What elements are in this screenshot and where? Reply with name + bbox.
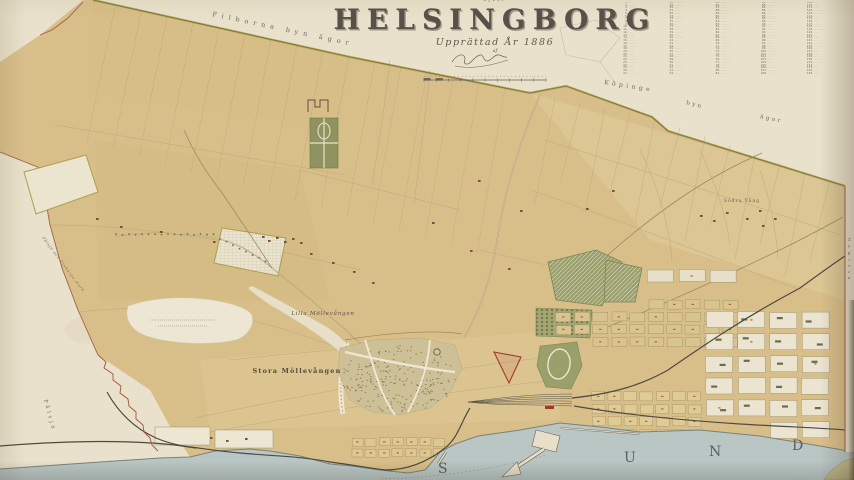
town-building: [365, 392, 366, 393]
index-column: 82.········83.·········84.····85.·····86…: [761, 2, 804, 76]
index-row: 135.·······: [807, 73, 850, 76]
town-building: [427, 389, 428, 390]
town-building: [358, 384, 359, 385]
city-block: [673, 405, 686, 414]
town-building: [361, 387, 362, 388]
town-building: [405, 409, 406, 410]
town-building: [358, 369, 359, 370]
town-building: [404, 361, 405, 362]
town-building: [403, 366, 404, 367]
town-building: [379, 351, 380, 352]
index-entry-name: ·······: [629, 73, 636, 76]
avenue-tree: [135, 234, 137, 236]
farm-building: [432, 222, 435, 224]
farm-building: [470, 250, 473, 252]
avenue-tree: [187, 233, 189, 235]
town-building: [410, 350, 411, 351]
farm-building: [713, 220, 716, 222]
city-block: [685, 338, 700, 347]
city-block: [630, 313, 645, 322]
town-building: [430, 390, 431, 391]
avenue-tree: [180, 234, 182, 236]
town-building: [387, 372, 388, 373]
avenue-tree: [141, 233, 143, 235]
town-building: [404, 405, 405, 406]
city-block: [624, 404, 637, 413]
town-building: [434, 360, 435, 361]
index-number: 81.: [714, 73, 720, 76]
label-ramlosa: Ramlösa: [847, 238, 852, 283]
avenue-tree: [115, 233, 117, 235]
town-building: [382, 382, 383, 383]
farm-building: [726, 212, 729, 214]
sund-letter-n: N: [709, 444, 721, 460]
town-building: [410, 357, 411, 358]
city-block: [802, 422, 829, 438]
farm-building: [478, 180, 481, 182]
town-building: [343, 385, 344, 386]
town-building: [394, 398, 395, 399]
town-building: [383, 384, 384, 385]
index-entry-name: ·······: [814, 73, 821, 76]
city-block: [593, 312, 608, 321]
town-building: [437, 400, 438, 401]
town-building: [389, 351, 390, 352]
city-block: [647, 270, 673, 282]
index-row: 27.·······: [622, 73, 665, 76]
town-building: [436, 378, 437, 379]
tower-keep: [434, 349, 440, 355]
avenue-tree: [128, 233, 130, 235]
city-block: [352, 439, 363, 447]
farm-building: [746, 218, 749, 220]
city-block: [365, 438, 376, 446]
town-building: [379, 353, 380, 354]
avenue-tree: [226, 241, 228, 243]
avenue-tree: [148, 233, 150, 235]
city-block: [623, 392, 636, 401]
index-column: 28.········29.·········30.····31.·····32…: [668, 2, 711, 76]
block-number-mark: [581, 329, 583, 330]
town-building: [430, 399, 431, 400]
town-building: [429, 386, 430, 387]
town-building: [396, 395, 397, 396]
town-building: [393, 383, 394, 384]
town-building: [397, 346, 398, 347]
index-row: 81.·······: [714, 73, 757, 76]
factory-building: [775, 340, 781, 342]
block-number-mark: [599, 329, 601, 330]
index-number: 27.: [622, 73, 628, 76]
factory-building: [743, 337, 749, 339]
city-block: [770, 334, 797, 350]
city-block: [672, 417, 685, 426]
factory-building: [806, 320, 812, 322]
city-block: [803, 357, 830, 373]
factory-building: [815, 407, 821, 409]
town-building: [373, 400, 374, 401]
town-building: [383, 371, 384, 372]
town-building: [401, 411, 402, 412]
town-building: [404, 373, 405, 374]
town-building: [402, 381, 403, 382]
farm-building: [262, 236, 265, 238]
factory-building: [817, 343, 823, 345]
town-building: [448, 380, 449, 381]
town-building: [445, 393, 446, 394]
farm-building: [210, 437, 213, 439]
town-building: [401, 351, 402, 352]
farm-building: [520, 210, 523, 212]
town-building: [421, 392, 422, 393]
block-number-mark: [691, 275, 693, 276]
farm-building: [268, 240, 271, 242]
city-block: [802, 312, 829, 328]
town-building: [389, 370, 390, 371]
index-row: 54.····: [668, 73, 711, 76]
city-block: [738, 400, 765, 416]
avenue-tree: [219, 238, 221, 240]
city-block: [649, 300, 664, 309]
town-building: [423, 362, 424, 363]
block-number-mark: [383, 441, 385, 442]
town-building: [388, 390, 389, 391]
block-number-mark: [750, 341, 752, 342]
index-number: 108.: [761, 73, 767, 76]
town-building: [433, 384, 434, 385]
town-building: [357, 374, 358, 375]
town-building: [391, 404, 392, 405]
farm-building: [332, 262, 335, 264]
city-block: [673, 392, 686, 401]
farm-building: [292, 238, 295, 240]
town-building: [394, 354, 395, 355]
block-number-mark: [661, 396, 663, 397]
farm-building: [353, 271, 356, 273]
town-building: [403, 384, 404, 385]
town-building: [348, 388, 349, 389]
town-building: [361, 369, 362, 370]
city-block: [802, 378, 829, 394]
town-building: [411, 346, 412, 347]
label-lilla-mollevangen: Lilla Möllevången: [290, 310, 355, 317]
avenue-tree: [245, 251, 247, 253]
index-row: 108.····: [761, 73, 804, 76]
index-number: 135.: [807, 73, 813, 76]
town-building: [360, 398, 361, 399]
town-building: [387, 407, 388, 408]
town-building: [367, 366, 368, 367]
town-building: [434, 399, 435, 400]
town-building: [347, 386, 348, 387]
label-stora-mollevangen: Stora Möllevången: [252, 366, 341, 375]
town-building: [378, 406, 379, 407]
town-building: [387, 398, 388, 399]
factory-building: [777, 317, 783, 319]
town-building: [386, 371, 387, 372]
town-building: [404, 403, 405, 404]
town-building: [384, 362, 385, 363]
block-number-mark: [397, 452, 399, 453]
town-building: [374, 386, 375, 387]
city-block: [770, 401, 797, 417]
town-building: [438, 378, 439, 379]
town-building: [367, 372, 368, 373]
town-building: [374, 362, 375, 363]
town-building: [350, 378, 351, 379]
town-building: [385, 376, 386, 377]
town-building: [397, 351, 398, 352]
town-building: [400, 368, 401, 369]
town-building: [378, 352, 379, 353]
town-building: [358, 387, 359, 388]
map-sheet: Filborna byn ägor Köpinge byn ägor Lilla…: [0, 0, 854, 480]
town-building: [448, 381, 449, 382]
sund-letter-u: U: [624, 450, 636, 466]
town-building: [425, 384, 426, 385]
town-building: [430, 380, 431, 381]
town-building: [433, 383, 434, 384]
town-building: [398, 395, 399, 396]
town-building: [445, 364, 446, 365]
city-block: [686, 312, 701, 321]
town-building: [378, 366, 379, 367]
town-building: [359, 401, 360, 402]
town-building: [413, 372, 414, 373]
town-building: [438, 372, 439, 373]
city-block: [770, 377, 797, 393]
farm-building: [759, 210, 762, 212]
city-block: [648, 325, 663, 334]
block-number-mark: [356, 441, 358, 442]
block-number-mark: [562, 329, 564, 330]
factory-building: [812, 361, 818, 363]
town-building: [413, 406, 414, 407]
town-building: [401, 407, 402, 408]
town-building: [367, 401, 368, 402]
factory-building: [711, 386, 717, 388]
town-building: [351, 387, 352, 388]
town-building: [426, 394, 427, 395]
avenue-tree: [239, 248, 241, 250]
town-building: [427, 391, 428, 392]
factory-building: [776, 386, 782, 388]
city-block: [667, 338, 682, 347]
town-building: [344, 372, 345, 373]
block-number-mark: [655, 316, 657, 317]
block-number-mark: [814, 363, 816, 364]
town-building: [374, 389, 375, 390]
avenue-tree: [213, 233, 215, 235]
farm-building: [213, 241, 216, 243]
factory-building: [744, 405, 750, 407]
town-building: [350, 390, 351, 391]
town-building: [425, 408, 426, 409]
block-number-mark: [599, 341, 601, 342]
town-building: [345, 370, 346, 371]
city-block: [738, 357, 765, 373]
city-block: [710, 270, 736, 282]
avenue-tree: [174, 233, 176, 235]
avenue-tree: [265, 260, 267, 262]
block-number-mark: [692, 304, 694, 305]
block-number-mark: [424, 452, 426, 453]
town-building: [360, 378, 361, 379]
town-building: [430, 384, 431, 385]
block-number-mark: [636, 329, 638, 330]
farm-building: [226, 440, 229, 442]
town-building: [427, 403, 428, 404]
town-building: [349, 364, 350, 365]
city-block: [771, 422, 798, 438]
index-entry-name: ·······: [721, 73, 728, 76]
town-building: [421, 352, 422, 353]
avenue-tree: [193, 234, 195, 236]
town-building: [407, 350, 408, 351]
town-building: [410, 395, 411, 396]
farm-building: [774, 218, 777, 220]
farm-building: [762, 225, 765, 227]
block-number-mark: [673, 329, 675, 330]
farm-building: [120, 226, 123, 228]
avenue-tree: [252, 254, 254, 256]
block-number-mark: [673, 304, 675, 305]
city-block: [707, 311, 734, 327]
town-building: [380, 371, 381, 372]
town-building: [423, 393, 424, 394]
town-building: [423, 405, 424, 406]
city-block: [802, 334, 829, 350]
town-building: [378, 394, 379, 395]
town-building: [407, 369, 408, 370]
town-building: [378, 396, 379, 397]
station-building: [545, 406, 554, 409]
factory-building: [782, 405, 788, 407]
block-number-mark: [729, 304, 731, 305]
block-number-mark: [562, 316, 564, 317]
town-building: [365, 366, 366, 367]
town-building: [369, 406, 370, 407]
factory-building: [716, 339, 722, 341]
town-building: [393, 398, 394, 399]
block-number-mark: [661, 408, 663, 409]
town-building: [402, 410, 403, 411]
town-building: [446, 396, 447, 397]
town-building: [397, 401, 398, 402]
town-building: [344, 387, 345, 388]
town-building: [399, 345, 400, 346]
block-number-mark: [410, 441, 412, 442]
town-building: [381, 379, 382, 380]
city-block: [640, 405, 653, 414]
street-index: 1.·····2.······3.·······4.········5.····…: [622, 2, 850, 76]
town-building: [370, 378, 371, 379]
town-building: [370, 376, 371, 377]
town-building: [372, 384, 373, 385]
city-block: [640, 392, 653, 401]
town-building: [418, 394, 419, 395]
index-entry-name: ····: [675, 73, 679, 76]
town-building: [411, 382, 412, 383]
block-number-mark: [655, 341, 657, 342]
block-number-mark: [597, 421, 599, 422]
town-building: [400, 403, 401, 404]
city-block: [433, 438, 444, 446]
farm-building: [700, 215, 703, 217]
town-building: [423, 391, 424, 392]
block-number-mark: [597, 396, 599, 397]
town-building: [398, 348, 399, 349]
town-building: [344, 369, 345, 370]
town-building: [417, 403, 418, 404]
town-building: [438, 382, 439, 383]
town-building: [370, 382, 371, 383]
town-building: [376, 387, 377, 388]
town-building: [429, 373, 430, 374]
town-building: [382, 411, 383, 412]
city-block: [556, 326, 571, 335]
town-building: [355, 380, 356, 381]
farm-building: [310, 253, 313, 255]
town-building: [392, 408, 393, 409]
town-building: [381, 410, 382, 411]
block-number-mark: [693, 408, 695, 409]
town-building: [432, 379, 433, 380]
block-number-mark: [645, 421, 647, 422]
block-number-mark: [397, 441, 399, 442]
town-building: [350, 360, 351, 361]
label-sodra-vang: Södra Vång: [724, 197, 760, 204]
town-building: [370, 363, 371, 364]
index-column: 55.·····56.······57.·······58.········59…: [714, 2, 757, 76]
town-building: [359, 367, 360, 368]
town-building: [386, 385, 387, 386]
town-building: [426, 379, 427, 380]
avenue-tree: [154, 233, 156, 235]
town-building: [417, 384, 418, 385]
town-building: [362, 374, 363, 375]
town-building: [388, 366, 389, 367]
block-number-mark: [581, 316, 583, 317]
farm-building: [284, 241, 287, 243]
block-number-mark: [692, 329, 694, 330]
town-building: [441, 372, 442, 373]
town-building: [416, 354, 417, 355]
city-block: [739, 378, 766, 394]
block-number-mark: [618, 329, 620, 330]
city-block: [706, 378, 733, 394]
avenue-tree: [206, 234, 208, 236]
farm-building: [276, 237, 279, 239]
town-building: [400, 380, 401, 381]
block-number-mark: [636, 341, 638, 342]
town-building: [370, 380, 371, 381]
block-number-mark: [613, 408, 615, 409]
town-building: [395, 376, 396, 377]
farm-building: [96, 218, 99, 220]
city-block: [608, 417, 621, 426]
avenue-tree: [200, 233, 202, 235]
town-building: [357, 400, 358, 401]
town-building: [434, 359, 435, 360]
avenue-tree: [161, 234, 163, 236]
block-number-mark: [750, 319, 752, 320]
town-building: [395, 383, 396, 384]
town-building: [356, 379, 357, 380]
town-building: [405, 380, 406, 381]
town-building: [380, 408, 381, 409]
town-building: [397, 366, 398, 367]
